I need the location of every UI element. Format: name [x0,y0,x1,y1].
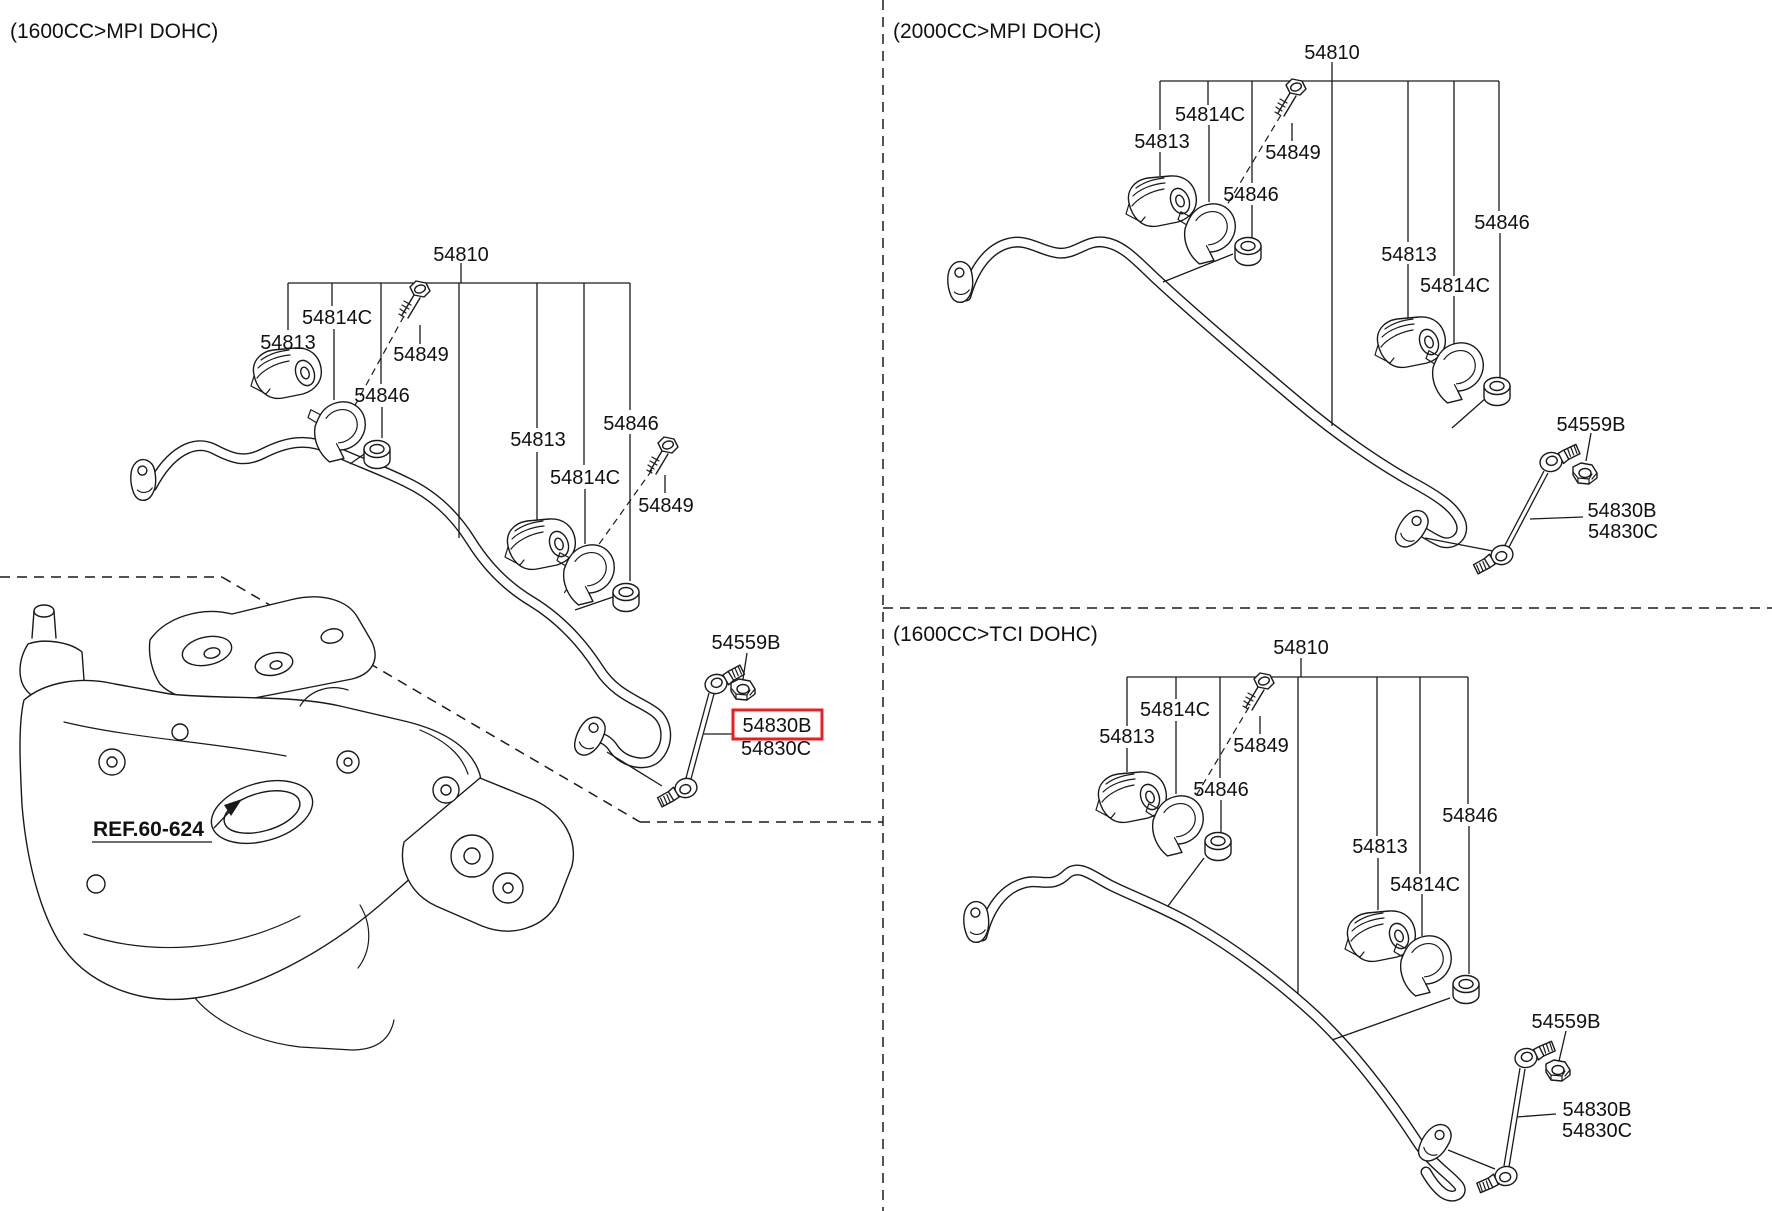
part-label-54830B-highlighted[interactable]: 54830B [743,715,812,737]
inner-bush-icon [1205,833,1231,861]
part-label-54559B[interactable]: 54559B [1532,1011,1601,1033]
part-icons [1096,673,1570,1193]
bushing-icon [1375,317,1445,368]
part-label-54813[interactable]: 54813 [1381,244,1437,266]
inner-bush-icon [364,441,390,469]
inner-bush-icon [1453,976,1479,1004]
inner-bush-icon [1235,238,1261,266]
callout-lines [1160,62,1591,552]
bar-eye-left [127,458,161,503]
part-label-54849[interactable]: 54849 [393,344,449,366]
part-label-54849[interactable]: 54849 [1233,735,1289,757]
part-label-54810[interactable]: 54810 [433,244,489,266]
bar-eye-right [1392,505,1432,552]
diagram-1600cc-tci-dohc: (1600CC>TCI DOHC) 54810 [893,623,1632,1196]
part-label-54814C[interactable]: 54814C [1140,699,1210,721]
section-header: (2000CC>MPI DOHC) [893,20,1101,43]
part-label-54846[interactable]: 54846 [1442,805,1498,827]
part-label-54813[interactable]: 54813 [1134,131,1190,153]
bar-eye-left [944,260,978,305]
ref-label[interactable]: REF.60-624 [93,818,204,841]
bushing-icon [1126,176,1196,227]
section-header: (1600CC>MPI DOHC) [10,20,218,43]
part-label-54846[interactable]: 54846 [603,413,659,435]
link-rod [686,693,714,779]
part-label-54814C[interactable]: 54814C [1420,275,1490,297]
bar-eye-right [1415,1119,1455,1166]
nut-icon [1546,1060,1570,1081]
part-label-54846[interactable]: 54846 [1474,212,1530,234]
part-label-54830B[interactable]: 54830B [1563,1099,1632,1121]
part-label-54814C[interactable]: 54814C [302,307,372,329]
part-label-54830B[interactable]: 54830B [1588,500,1657,522]
bolt-icon [1243,673,1274,710]
inner-bush-icon [613,584,639,612]
part-label-54810[interactable]: 54810 [1304,42,1360,64]
part-label-54814C[interactable]: 54814C [1175,104,1245,126]
part-label-54849[interactable]: 54849 [638,495,694,517]
part-label-54830C[interactable]: 54830C [1562,1120,1632,1142]
bar-eye-right [571,713,608,759]
parts-catalog-page: (1600CC>MPI DOHC) [0,0,1772,1211]
link-ball-bottom-icon [655,776,700,807]
diagram-1600cc-mpi-dohc: (1600CC>MPI DOHC) [10,20,822,1050]
part-label-54813[interactable]: 54813 [1352,836,1408,858]
link-rod [1504,1068,1525,1167]
part-label-54813[interactable]: 54813 [260,332,316,354]
part-label-54846[interactable]: 54846 [1223,184,1279,206]
link-rod [1504,471,1548,549]
part-label-54830C[interactable]: 54830C [1588,521,1658,543]
part-label-54813[interactable]: 54813 [1099,726,1155,748]
stabilizer-bar-drawing [944,242,1462,553]
callout-lines [1127,658,1566,1169]
part-icons [1126,79,1597,574]
bushing-icon [251,348,321,399]
part-label-54813[interactable]: 54813 [510,429,566,451]
nut-icon [1573,463,1597,484]
part-label-54814C[interactable]: 54814C [550,467,620,489]
part-label-54559B[interactable]: 54559B [712,632,781,654]
part-label-54846[interactable]: 54846 [1193,779,1249,801]
part-label-54846[interactable]: 54846 [354,385,410,407]
part-label-54559B[interactable]: 54559B [1557,414,1626,436]
bolt-icon [647,437,678,474]
bolt-icon [399,281,430,318]
part-label-54830C[interactable]: 54830C [741,738,811,760]
part-label-54810[interactable]: 54810 [1273,637,1329,659]
part-label-54814C[interactable]: 54814C [1390,874,1460,896]
bolt-icon [1275,79,1306,116]
link-ball-bottom-icon [1475,1165,1519,1193]
inner-bush-icon [1484,378,1510,406]
nut-icon [731,679,755,700]
bushing-icon [505,519,575,570]
diagram-2000cc-mpi-dohc: (2000CC>MPI DOHC) 54810 [893,20,1658,574]
section-header: (1600CC>TCI DOHC) [893,623,1098,646]
part-label-54849[interactable]: 54849 [1265,142,1321,164]
